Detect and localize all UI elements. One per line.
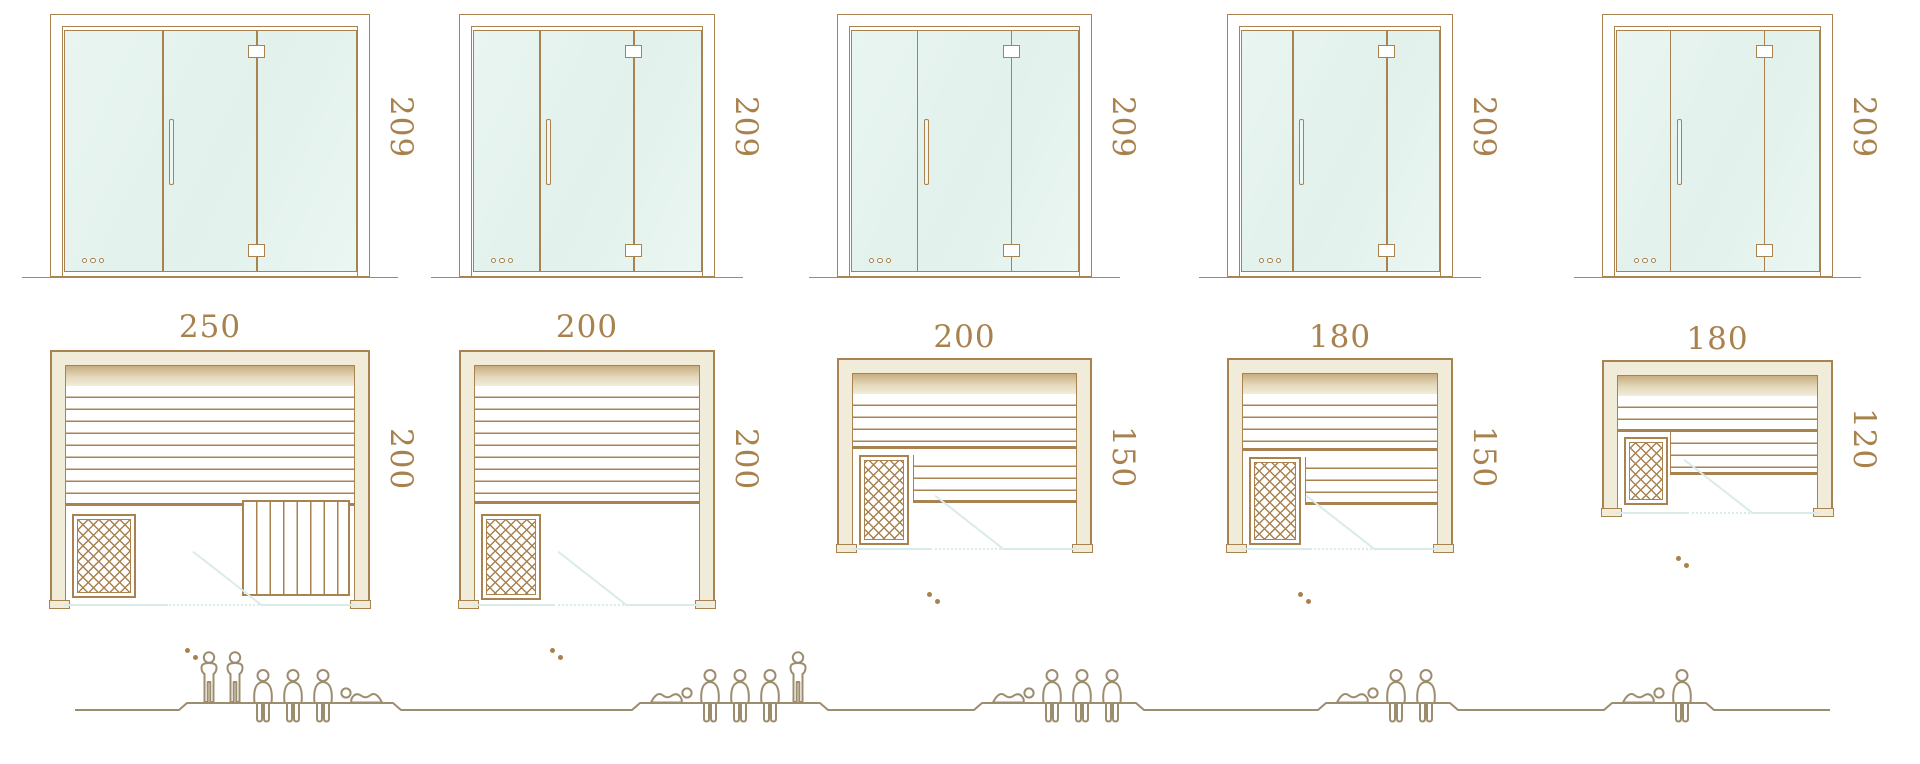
door-handle-icon	[1677, 119, 1682, 185]
width-dimension: 200	[459, 312, 715, 343]
bench-slats	[66, 386, 354, 506]
door-hinge-icon	[1756, 244, 1773, 257]
front-elevation	[1227, 14, 1453, 277]
frame-post-left	[51, 15, 63, 276]
sauna-lineup-diagram: 209 250 200	[0, 0, 1920, 764]
lower-bench-slats	[1670, 432, 1817, 475]
capacity-group-250x200	[202, 652, 383, 721]
frame-post-right	[1440, 15, 1452, 276]
frame-post-left	[460, 15, 472, 276]
heater-icon	[481, 514, 541, 600]
frame-post-right	[357, 15, 369, 276]
glass-front	[1616, 30, 1820, 272]
frame-post-right	[702, 15, 714, 276]
door-swing-arc	[851, 548, 1078, 618]
door-handle-icon	[924, 119, 929, 185]
floor-plan	[459, 350, 715, 606]
backrest-band	[853, 374, 1076, 395]
glass-divider	[633, 31, 635, 271]
backrest-band	[1243, 374, 1437, 395]
door-hinge-icon	[248, 45, 265, 58]
glass-divider	[1764, 31, 1766, 271]
frame-top-beam	[1614, 15, 1821, 27]
floor-plan	[837, 358, 1092, 550]
frame-post-right	[1820, 15, 1832, 276]
capacity-row	[75, 640, 1830, 740]
backrest-band	[475, 366, 699, 387]
frame-top-beam	[849, 15, 1080, 27]
vent-dots-icon	[491, 258, 514, 264]
door-handle-icon	[169, 119, 174, 185]
frame-post-right	[1079, 15, 1091, 276]
door-swing-arc	[1616, 512, 1819, 582]
vent-dots-icon	[869, 258, 892, 264]
plan-interior	[1617, 375, 1818, 514]
frame-top-beam	[1239, 15, 1441, 27]
glass-divider	[917, 31, 919, 271]
front-elevation	[1602, 14, 1833, 277]
bench-platform-line	[75, 703, 1830, 710]
glass-divider	[1292, 31, 1294, 271]
bench-slats	[853, 394, 1076, 449]
glass-front	[473, 30, 702, 272]
frame-post-left	[1603, 15, 1615, 276]
door-handle-icon	[1299, 119, 1304, 185]
vent-dots-icon	[82, 258, 105, 264]
heater-icon	[72, 514, 136, 598]
ground-line	[22, 277, 398, 278]
floor-plan	[50, 350, 370, 606]
width-dimension: 180	[1227, 322, 1453, 353]
heater-icon	[1624, 437, 1668, 505]
bench-slats	[1243, 394, 1437, 451]
frame-post-left	[838, 15, 850, 276]
door-hinge-icon	[625, 244, 642, 257]
height-dimension: 209	[1107, 96, 1138, 158]
door-hinge-icon	[1756, 45, 1773, 58]
width-dimension: 250	[50, 312, 370, 343]
frame-top-beam	[471, 15, 703, 27]
door-handle-icon	[546, 119, 551, 185]
capacity-group-180x150	[1337, 670, 1435, 722]
depth-dimension: 200	[730, 428, 761, 490]
lower-bench-slats	[1305, 457, 1437, 505]
height-dimension: 209	[1848, 96, 1879, 158]
height-dimension: 209	[385, 96, 416, 158]
glass-divider	[539, 31, 541, 271]
bench-slats	[1618, 396, 1817, 432]
bench-slats	[475, 386, 699, 504]
ground-line	[431, 277, 743, 278]
backrest-band	[66, 366, 354, 387]
width-dimension: 200	[837, 322, 1092, 353]
depth-dimension: 150	[1468, 426, 1499, 488]
plan-interior	[65, 365, 355, 606]
glass-front	[1241, 30, 1440, 272]
glass-divider	[162, 31, 164, 271]
ground-line	[1574, 277, 1861, 278]
heater-icon	[1249, 457, 1301, 545]
capacity-group-200x150	[993, 670, 1121, 722]
door-hinge-icon	[1003, 244, 1020, 257]
ground-line	[809, 277, 1120, 278]
front-elevation	[459, 14, 715, 277]
depth-dimension: 120	[1848, 408, 1879, 470]
ground-line	[1199, 277, 1481, 278]
heater-icon	[859, 455, 909, 545]
width-dimension: 180	[1602, 324, 1833, 355]
door-hinge-icon	[1003, 45, 1020, 58]
floor-plan	[1602, 360, 1833, 514]
vent-dots-icon	[1259, 258, 1282, 264]
door-swing-arc	[1241, 548, 1439, 618]
depth-dimension: 200	[385, 428, 416, 490]
door-hinge-icon	[1378, 45, 1395, 58]
door-hinge-icon	[625, 45, 642, 58]
plan-interior	[852, 373, 1077, 550]
front-elevation	[50, 14, 370, 277]
backrest-band	[1618, 376, 1817, 397]
capacity-group-180x120	[1623, 670, 1691, 722]
plan-interior	[474, 365, 700, 606]
height-dimension: 209	[730, 96, 761, 158]
glass-divider	[256, 31, 258, 271]
capacity-group-200x200	[651, 652, 806, 721]
glass-divider	[1670, 31, 1672, 271]
vent-dots-icon	[1634, 258, 1657, 264]
front-elevation	[837, 14, 1092, 277]
glass-front	[851, 30, 1079, 272]
height-dimension: 209	[1468, 96, 1499, 158]
glass-front	[64, 30, 357, 272]
frame-top-beam	[62, 15, 358, 27]
door-hinge-icon	[248, 244, 265, 257]
door-hinge-icon	[1378, 244, 1395, 257]
glass-divider	[1011, 31, 1013, 271]
frame-post-left	[1228, 15, 1240, 276]
depth-dimension: 150	[1107, 426, 1138, 488]
glass-divider	[1386, 31, 1388, 271]
side-bench	[242, 500, 350, 596]
